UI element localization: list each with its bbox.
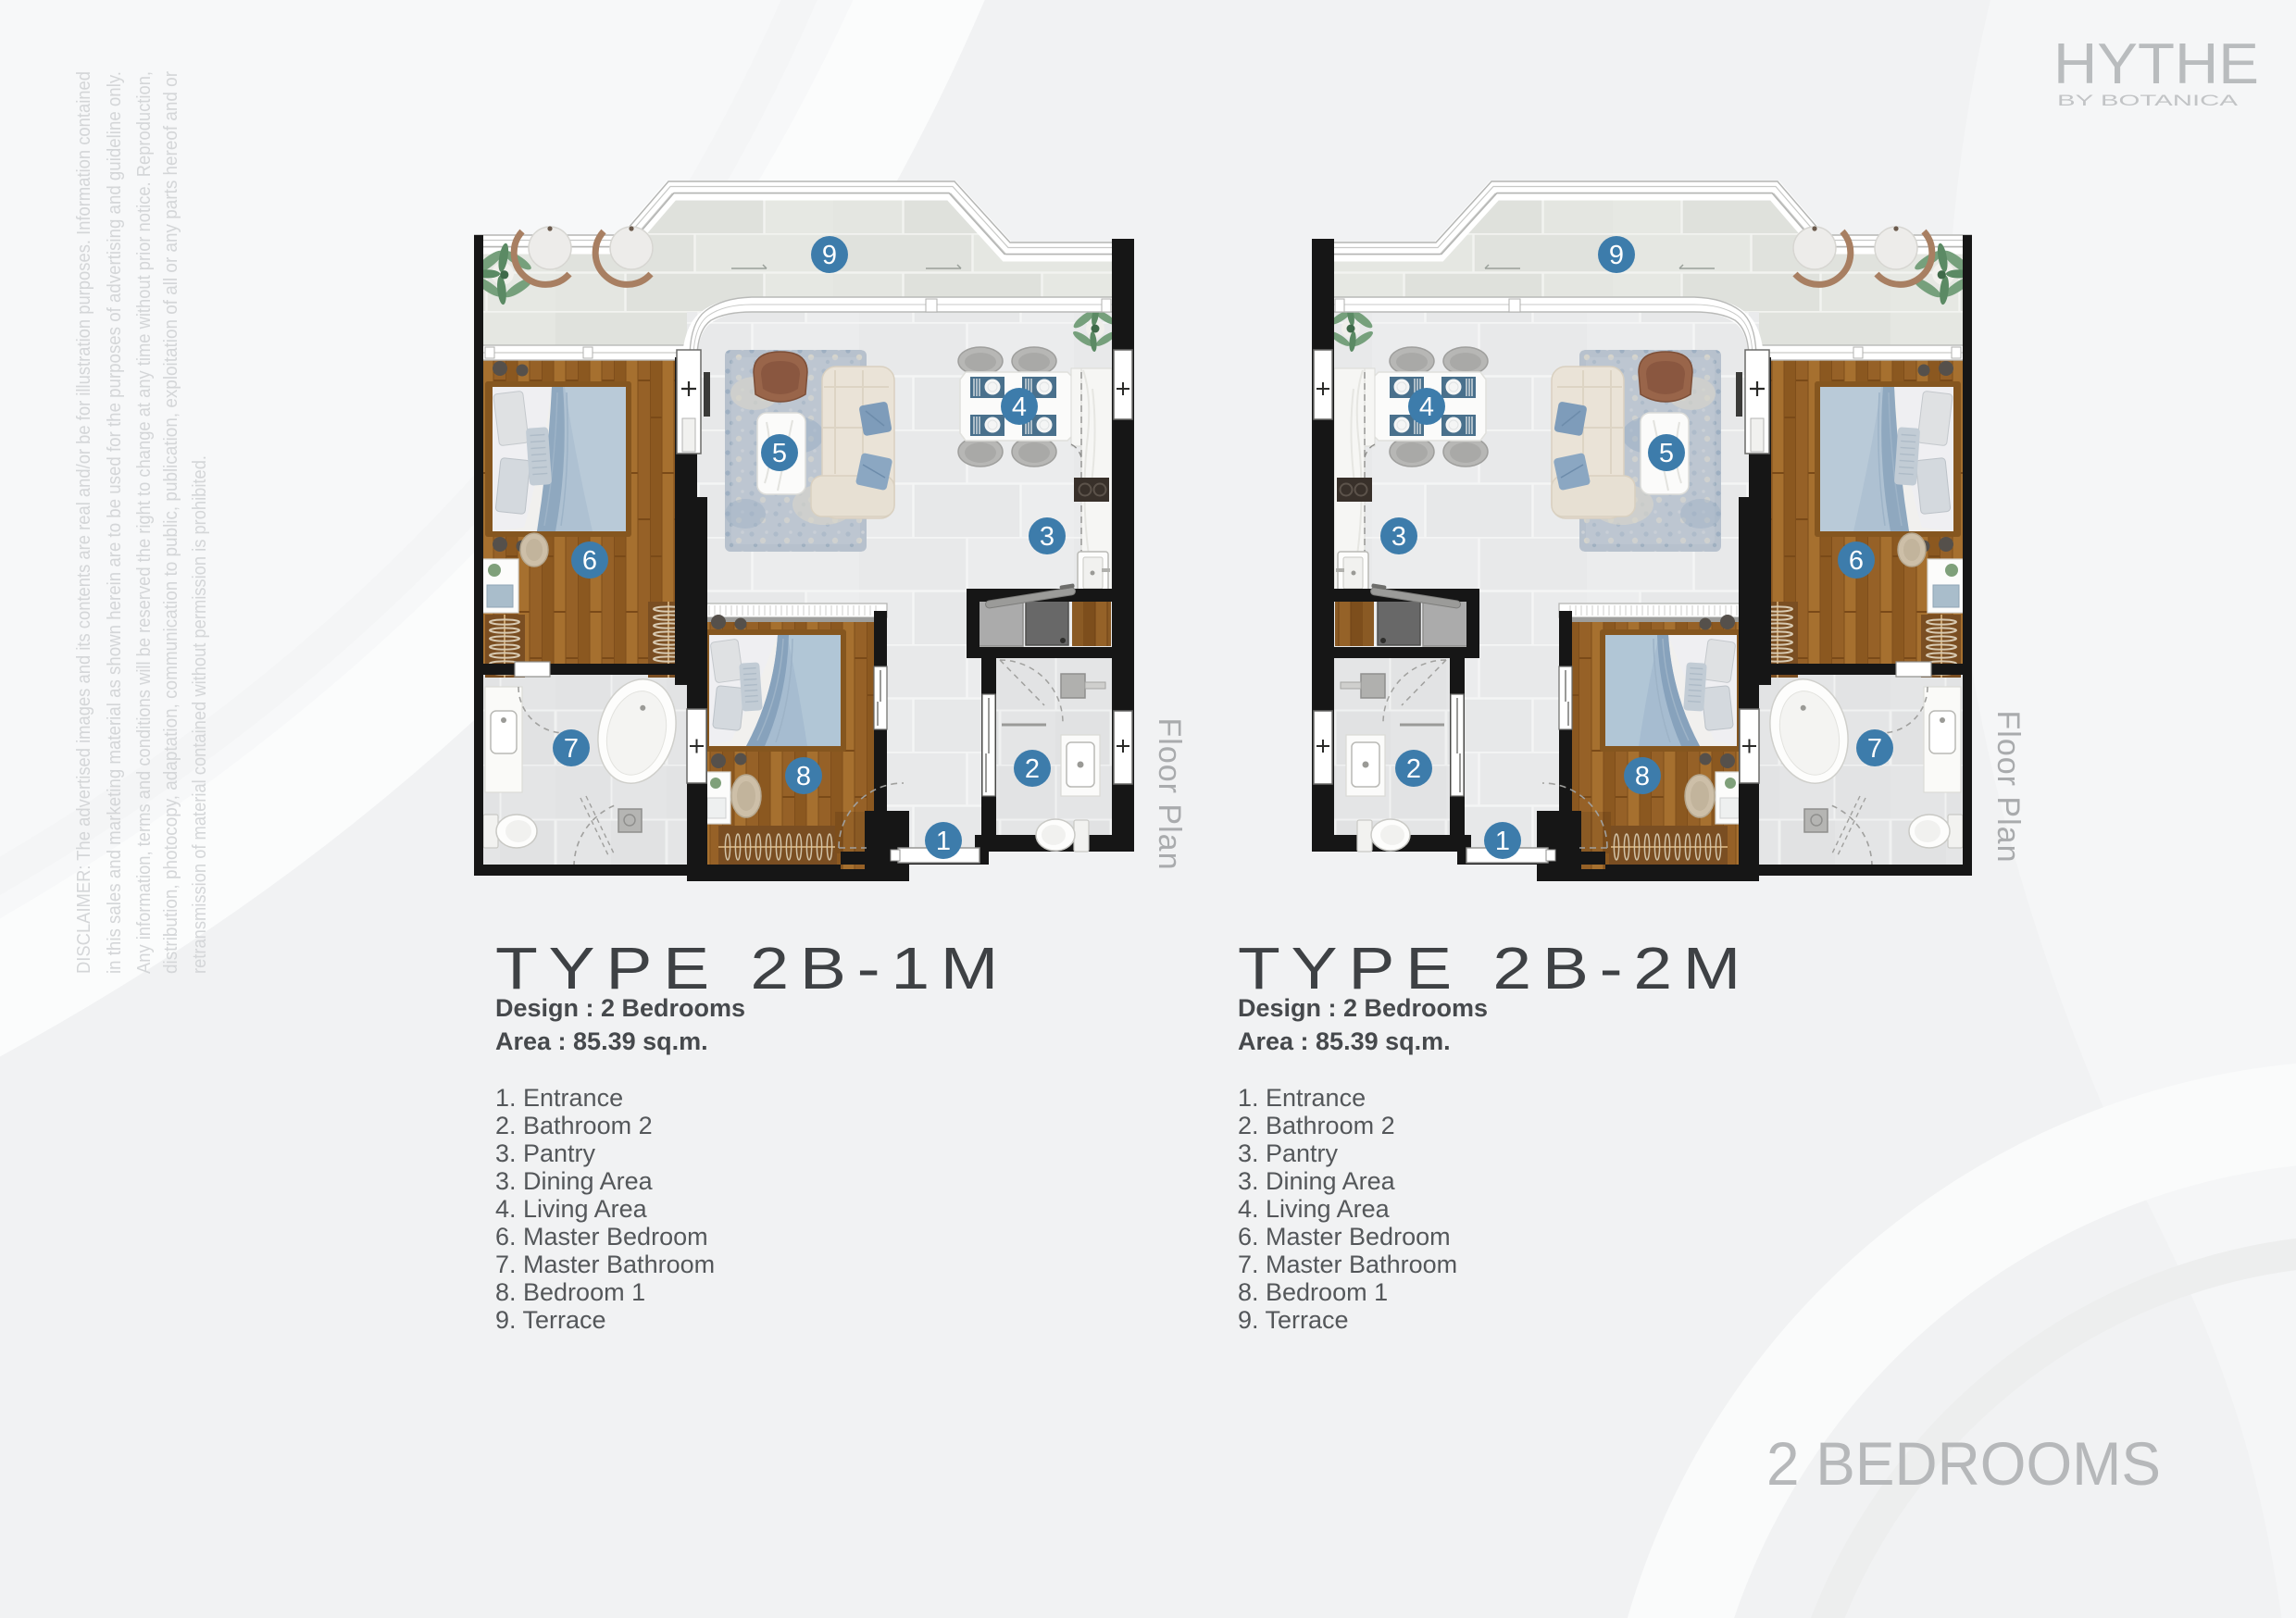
svg-text:retransmission of material con: retransmission of material contained wit… — [190, 455, 210, 974]
svg-text:2. Bathroom 2: 2. Bathroom 2 — [495, 1112, 653, 1139]
svg-text:Area : 85.39 sq.m.: Area : 85.39 sq.m. — [1238, 1027, 1451, 1055]
svg-text:9: 9 — [822, 241, 837, 270]
svg-text:5: 5 — [772, 439, 787, 468]
svg-text:2. Bathroom 2: 2. Bathroom 2 — [1238, 1112, 1395, 1139]
svg-text:Area : 85.39 sq.m.: Area : 85.39 sq.m. — [495, 1027, 708, 1055]
svg-text:3. Dining Area: 3. Dining Area — [1238, 1167, 1396, 1195]
svg-text:9. Terrace: 9. Terrace — [495, 1306, 606, 1334]
svg-text:Floor Plan: Floor Plan — [1990, 711, 2026, 864]
svg-text:Any information, terms and con: Any information, terms and conditions wi… — [134, 71, 155, 974]
svg-text:Design : 2 Bedrooms: Design : 2 Bedrooms — [1238, 994, 1488, 1022]
svg-text:8: 8 — [796, 762, 811, 791]
svg-text:2 BEDROOMS: 2 BEDROOMS — [1766, 1429, 2161, 1498]
svg-text:6: 6 — [1849, 546, 1864, 576]
svg-text:4. Living Area: 4. Living Area — [495, 1195, 648, 1223]
svg-text:6: 6 — [582, 546, 597, 576]
svg-text:7: 7 — [1867, 734, 1882, 764]
svg-text:HYTHE: HYTHE — [2053, 32, 2259, 96]
svg-text:1. Entrance: 1. Entrance — [495, 1084, 623, 1112]
svg-text:distribution, photocopy, adapt: distribution, photocopy, adaptation, com… — [161, 71, 181, 974]
svg-text:7. Master Bathroom: 7. Master Bathroom — [495, 1251, 715, 1278]
svg-text:3. Dining Area: 3. Dining Area — [495, 1167, 654, 1195]
svg-text:TYPE 2B-2M: TYPE 2B-2M — [1238, 935, 1752, 1002]
svg-text:7: 7 — [564, 734, 579, 764]
svg-text:3: 3 — [1391, 522, 1406, 552]
svg-text:4: 4 — [1012, 392, 1027, 422]
svg-text:5: 5 — [1659, 439, 1674, 468]
svg-text:4: 4 — [1419, 392, 1434, 422]
svg-text:7. Master Bathroom: 7. Master Bathroom — [1238, 1251, 1457, 1278]
svg-text:4. Living Area: 4. Living Area — [1238, 1195, 1391, 1223]
svg-text:2: 2 — [1406, 754, 1421, 784]
svg-text:6. Master Bedroom: 6. Master Bedroom — [1238, 1223, 1451, 1251]
svg-text:8: 8 — [1635, 762, 1650, 791]
svg-text:in this sales and marketing ma: in this sales and marketing material as … — [105, 71, 125, 974]
svg-text:8. Bedroom 1: 8. Bedroom 1 — [495, 1278, 645, 1306]
svg-text:DISCLAIMER: The advertised ima: DISCLAIMER: The advertised images and it… — [74, 71, 94, 974]
svg-text:Floor Plan: Floor Plan — [1152, 718, 1187, 871]
svg-text:6. Master Bedroom: 6. Master Bedroom — [495, 1223, 708, 1251]
svg-text:Design : 2 Bedrooms: Design : 2 Bedrooms — [495, 994, 745, 1022]
svg-text:2: 2 — [1025, 754, 1040, 784]
svg-text:9. Terrace: 9. Terrace — [1238, 1306, 1349, 1334]
svg-text:BY BOTANICA: BY BOTANICA — [2057, 92, 2239, 109]
svg-text:1. Entrance: 1. Entrance — [1238, 1084, 1366, 1112]
svg-text:3. Pantry: 3. Pantry — [1238, 1139, 1339, 1167]
svg-text:8. Bedroom 1: 8. Bedroom 1 — [1238, 1278, 1388, 1306]
svg-text:9: 9 — [1609, 241, 1624, 270]
svg-text:1: 1 — [1495, 827, 1510, 856]
svg-text:3. Pantry: 3. Pantry — [495, 1139, 596, 1167]
svg-text:TYPE 2B-1M: TYPE 2B-1M — [495, 935, 1009, 1002]
svg-text:1: 1 — [936, 827, 951, 856]
svg-text:3: 3 — [1040, 522, 1054, 552]
